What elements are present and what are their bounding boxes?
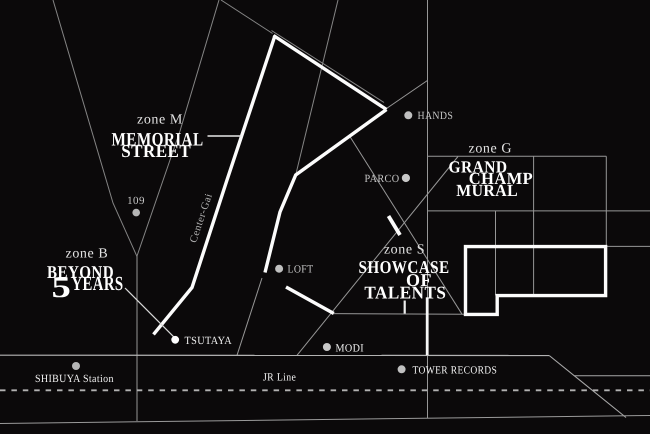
svg-text:MURAL: MURAL [456,181,518,200]
svg-text:zone S: zone S [384,243,425,258]
svg-text:STREET: STREET [121,141,191,161]
svg-text:zone B: zone B [66,246,109,261]
svg-text:zone M: zone M [137,113,183,128]
svg-text:SHIBUYA Station: SHIBUYA Station [35,373,114,385]
svg-text:SHOWCASE: SHOWCASE [359,257,450,277]
svg-text:109: 109 [127,195,145,207]
svg-text:5: 5 [52,271,72,304]
svg-text:TSUTAYA: TSUTAYA [185,335,233,347]
svg-text:LOFT: LOFT [288,264,314,276]
svg-text:TOWER RECORDS: TOWER RECORDS [413,365,498,377]
svg-text:PARCO: PARCO [365,173,400,185]
svg-text:YEARS: YEARS [72,273,124,295]
svg-text:TALENTS: TALENTS [364,283,446,303]
svg-text:JR Line: JR Line [263,371,296,383]
svg-text:HANDS: HANDS [418,110,454,122]
svg-text:MODI: MODI [336,343,365,355]
svg-text:zone G: zone G [469,142,513,157]
